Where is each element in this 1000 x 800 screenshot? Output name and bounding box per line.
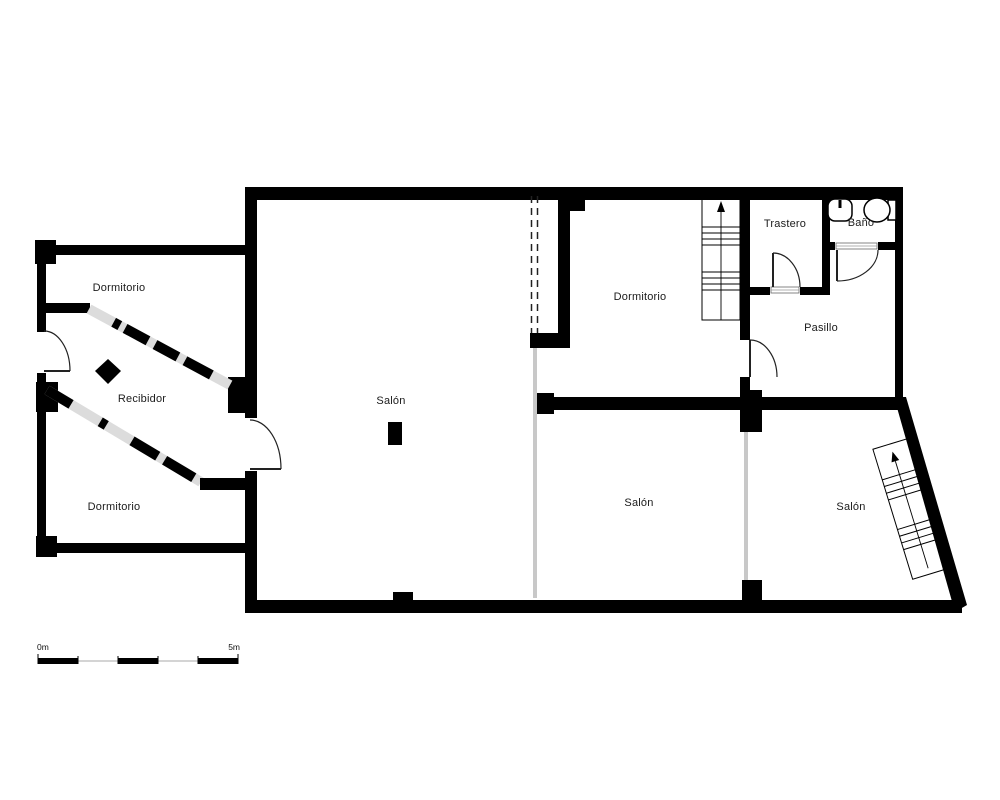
room-label-bano: Baño [848,217,875,229]
dashed-opening [532,196,538,333]
diamond-marker [95,359,121,384]
window-wall-lower [47,390,252,490]
up-arrow-icon [717,201,725,212]
open-dividers [535,348,746,598]
door-recibidor-salon [250,420,281,469]
room-label-pasillo: Pasillo [804,322,838,334]
staircase-dormitorio-icon [702,198,740,320]
scale-start-label: 0m [37,642,49,652]
scale-end-label: 5m [228,642,240,652]
walls [37,187,967,613]
room-label-dormitorio-sw: Dormitorio [88,501,141,513]
up-arrow-icon [889,450,900,462]
scale-bar [38,654,238,664]
door-entry-left [44,331,70,371]
door-bano [836,243,878,281]
room-label-salon-right: Salón [836,501,865,513]
column-marker [388,422,402,445]
room-label-salon-central: Salón [376,395,405,407]
room-label-dormitorio-nw: Dormitorio [93,282,146,294]
room-label-recibidor: Recibidor [118,393,166,405]
room-label-dormitorio-middle: Dormitorio [614,291,667,303]
door-dormitorio-pasillo [750,340,777,377]
floor-plan: Dormitorio Recibidor Dormitorio Salón Do… [0,0,1000,800]
door-trastero [771,253,800,293]
room-label-salon-middle: Salón [624,497,653,509]
room-label-trastero: Trastero [764,218,806,230]
